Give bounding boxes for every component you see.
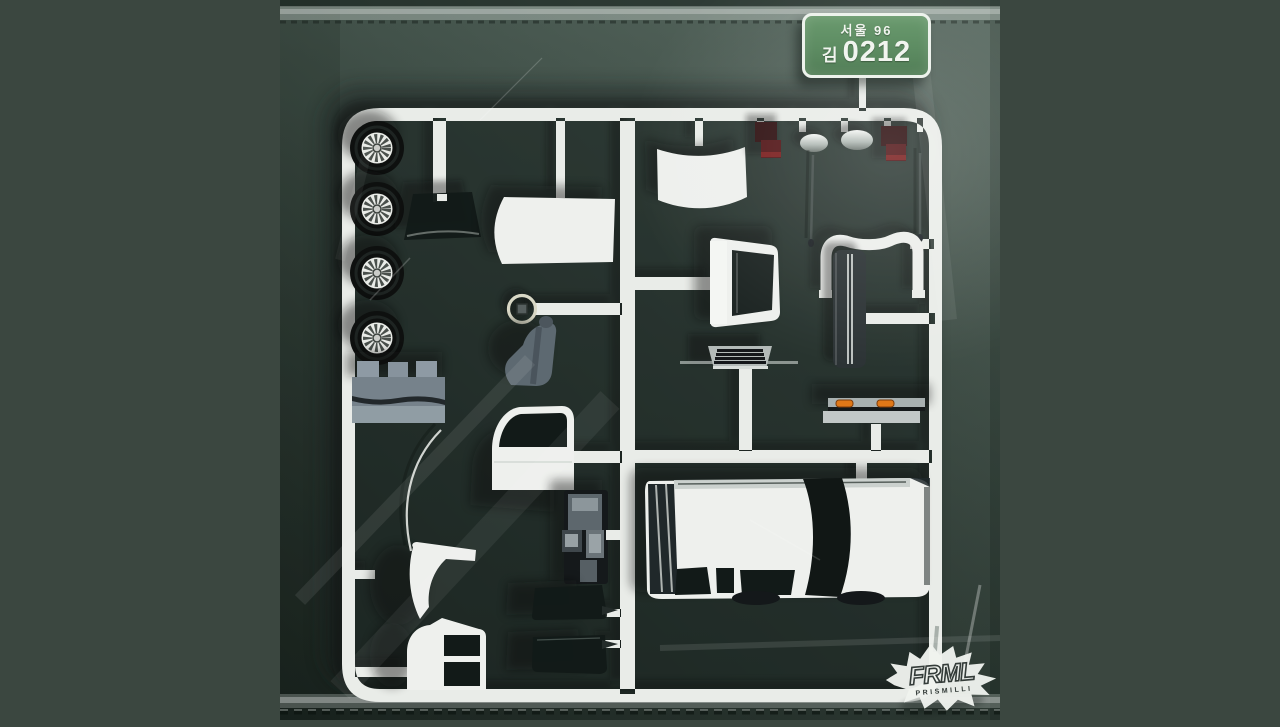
artist-logo-splat: FRML PRISMILLI [881, 636, 1005, 722]
license-plate-prefix: 김 [822, 47, 838, 64]
license-plate-number: 0212 [843, 38, 912, 67]
kit-scene [280, 0, 1000, 720]
artist-logo: FRML PRISMILLI [881, 636, 1005, 722]
roof-panel-part [481, 185, 615, 264]
loose-glass-part-2 [506, 629, 618, 674]
license-plate-main: 김 0212 [822, 38, 911, 67]
bench-seat-row-part [346, 352, 445, 423]
album-art: 서울 96 김 0212 FRML PRISMILLI [280, 0, 1000, 720]
rear-bumper-part [812, 384, 930, 423]
page: { "artwork": { "alt": "Plastic model car… [0, 0, 1280, 720]
loose-glass-part-1 [506, 580, 618, 620]
license-plate: 서울 96 김 0212 [802, 13, 931, 78]
